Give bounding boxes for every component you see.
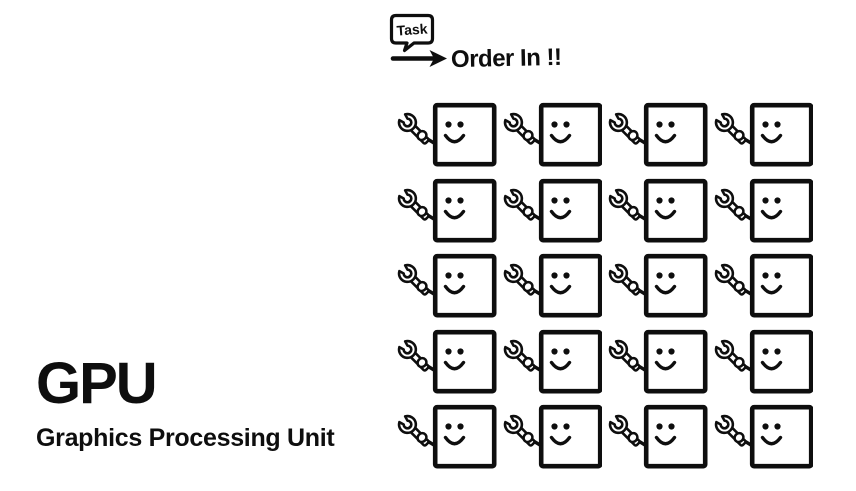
worker-unit bbox=[708, 398, 814, 474]
wrench-icon bbox=[396, 187, 433, 224]
worker-unit bbox=[391, 398, 497, 474]
worker-unit bbox=[708, 323, 814, 399]
worker-unit bbox=[391, 247, 497, 323]
wrench-icon bbox=[396, 111, 433, 148]
worker-unit bbox=[708, 172, 814, 248]
worker-unit bbox=[708, 96, 814, 172]
page-title: GPU bbox=[36, 355, 334, 413]
wrench-icon bbox=[502, 111, 539, 148]
wrench-icon bbox=[713, 111, 750, 148]
order-caption: Order In !! bbox=[451, 44, 562, 74]
wrench-icon bbox=[713, 262, 750, 299]
worker-unit bbox=[391, 172, 497, 248]
page-subtitle: Graphics Processing Unit bbox=[36, 426, 334, 451]
worker-unit bbox=[602, 247, 708, 323]
wrench-icon bbox=[607, 338, 644, 375]
wrench-icon bbox=[713, 338, 750, 375]
task-bubble-label: Task bbox=[396, 20, 428, 38]
worker-unit bbox=[391, 323, 497, 399]
wrench-icon bbox=[607, 111, 644, 148]
wrench-icon bbox=[502, 262, 539, 299]
worker-unit bbox=[708, 247, 814, 323]
wrench-icon bbox=[502, 338, 539, 375]
wrench-icon bbox=[396, 413, 433, 450]
wrench-icon bbox=[713, 187, 750, 224]
wrench-icon bbox=[607, 413, 644, 450]
wrench-icon bbox=[713, 413, 750, 450]
worker-unit bbox=[602, 172, 708, 248]
worker-unit bbox=[497, 247, 603, 323]
worker-unit bbox=[602, 96, 708, 172]
wrench-icon bbox=[396, 262, 433, 299]
wrench-icon bbox=[396, 338, 433, 375]
worker-grid bbox=[391, 96, 813, 474]
page: GPU Graphics Processing Unit Task Order … bbox=[0, 0, 856, 491]
worker-unit bbox=[497, 172, 603, 248]
wrench-icon bbox=[607, 187, 644, 224]
worker-unit bbox=[497, 398, 603, 474]
worker-unit bbox=[497, 323, 603, 399]
worker-unit bbox=[391, 96, 497, 172]
title-block: GPU Graphics Processing Unit bbox=[36, 355, 334, 451]
worker-unit bbox=[602, 323, 708, 399]
wrench-icon bbox=[502, 187, 539, 224]
wrench-icon bbox=[502, 413, 539, 450]
order-arrow-icon bbox=[389, 47, 451, 71]
worker-unit bbox=[602, 398, 708, 474]
wrench-icon bbox=[607, 262, 644, 299]
worker-unit bbox=[497, 96, 603, 172]
